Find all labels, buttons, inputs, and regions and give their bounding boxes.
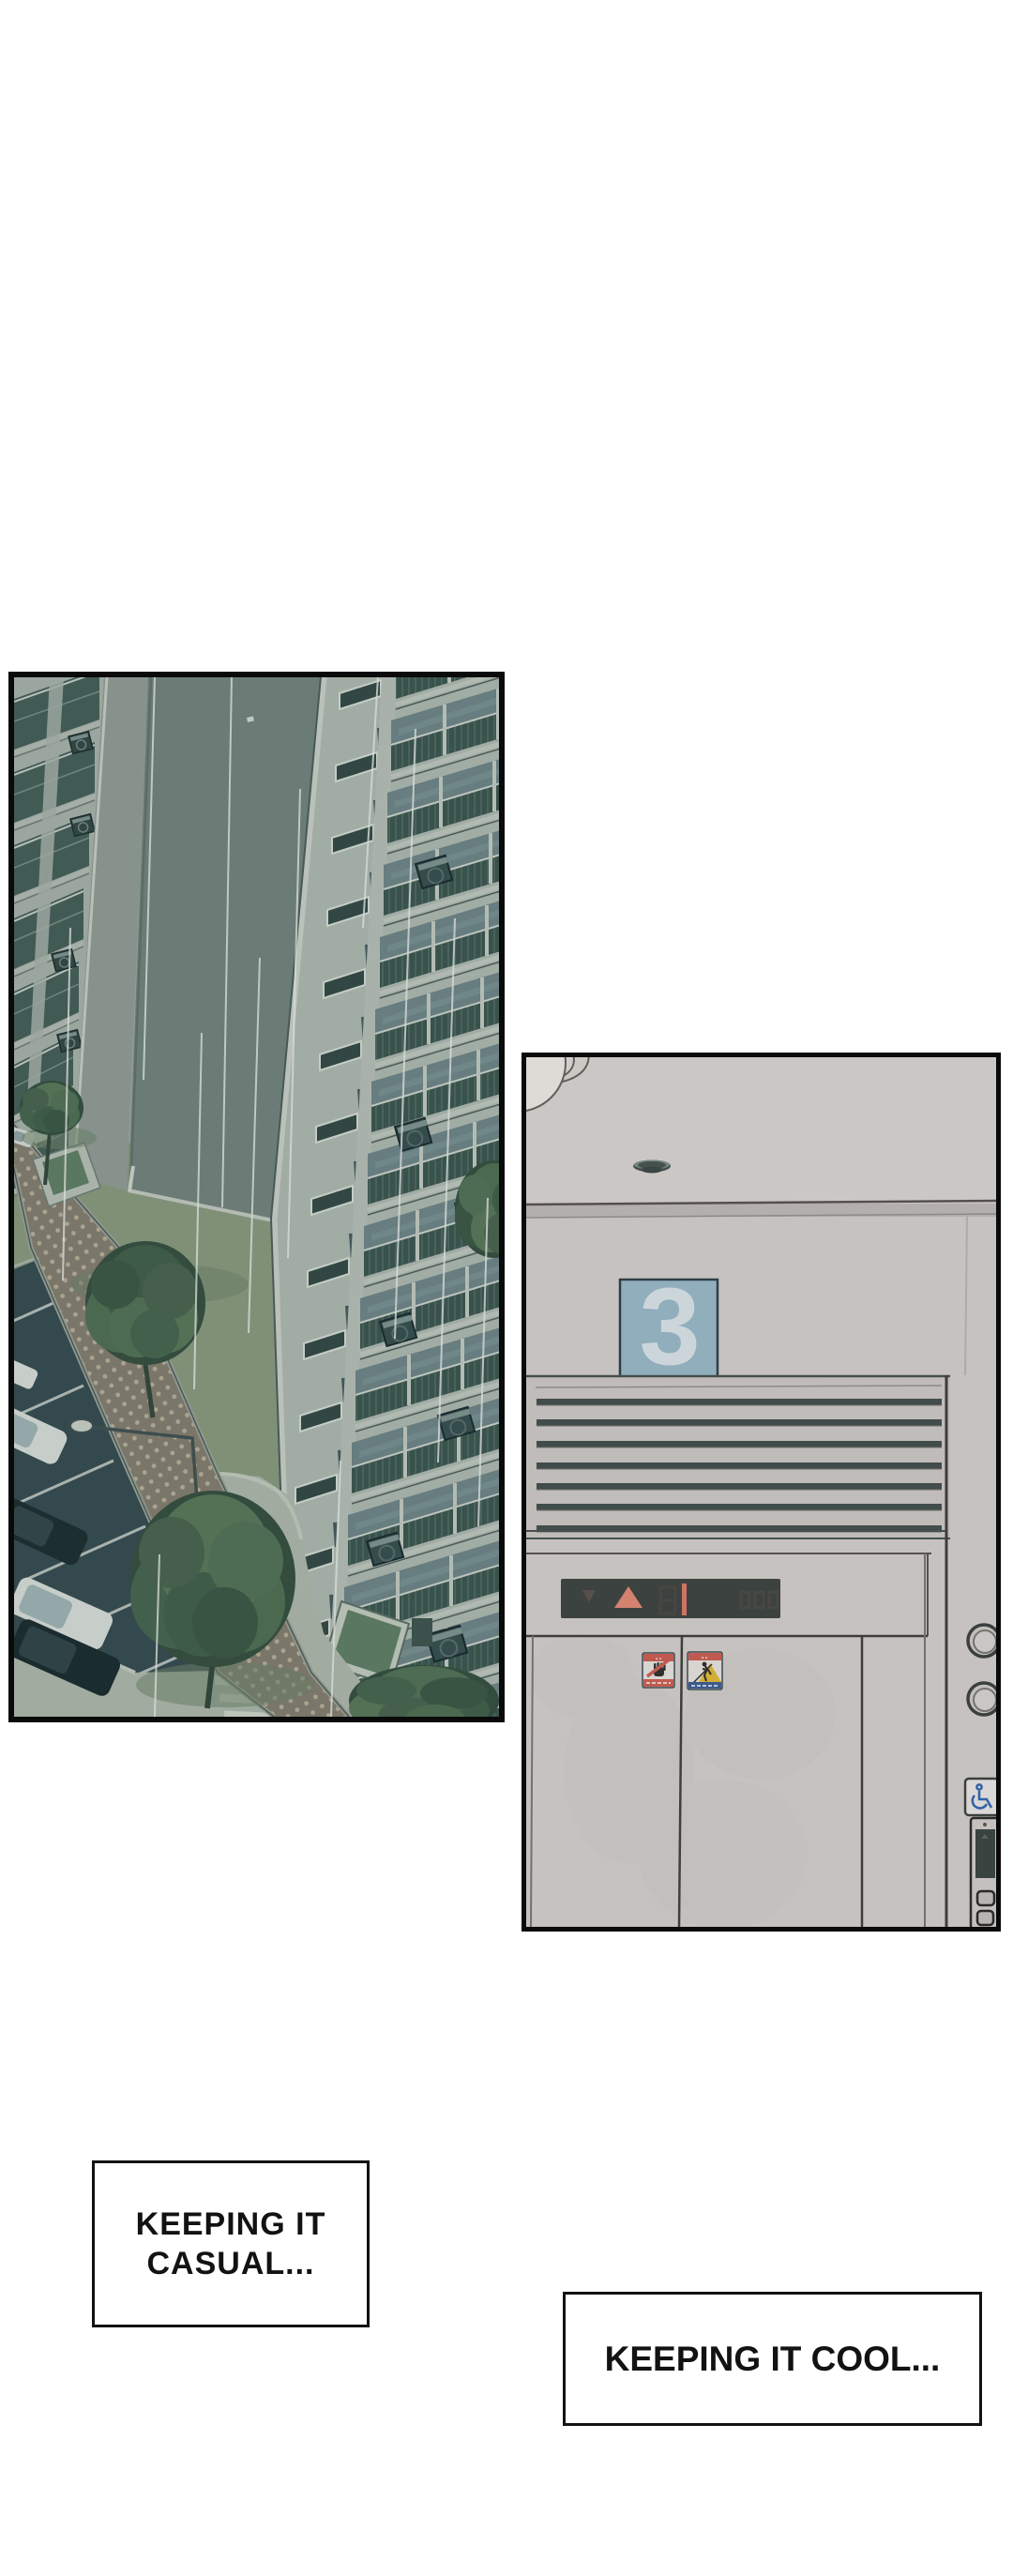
svg-text:▪ ▪: ▪ ▪	[702, 1656, 707, 1661]
svg-text:▪ ▪: ▪ ▪	[656, 1657, 661, 1662]
svg-text:3: 3	[639, 1265, 700, 1387]
